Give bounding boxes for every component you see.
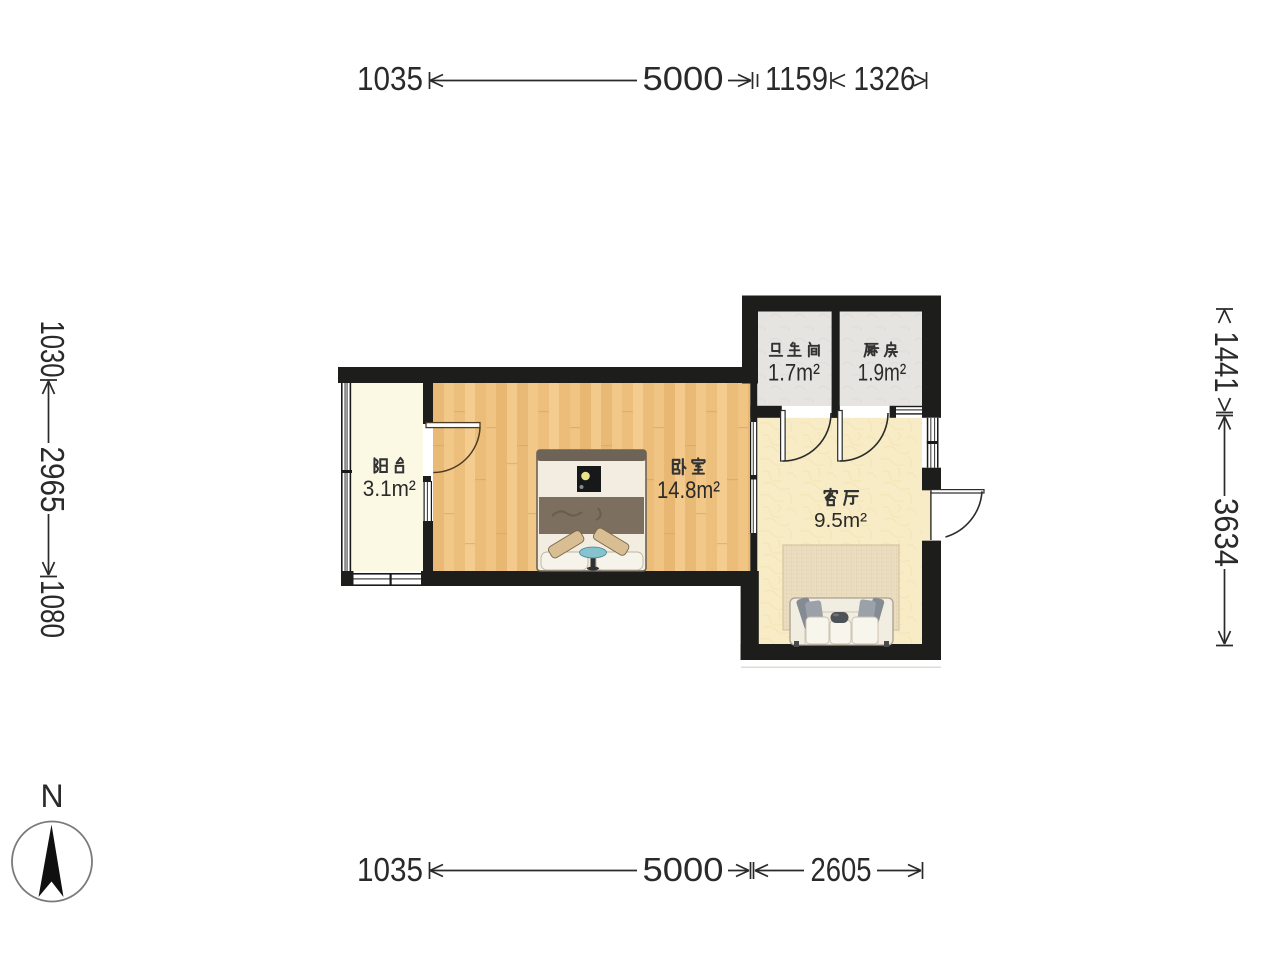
svg-text:3.1m²: 3.1m² [363, 476, 416, 501]
svg-text:2965: 2965 [34, 447, 71, 513]
svg-text:9.5m²: 9.5m² [814, 510, 867, 532]
svg-text:2605: 2605 [811, 851, 872, 888]
svg-text:1.9m²: 1.9m² [858, 360, 907, 387]
svg-text:14.8m²: 14.8m² [657, 477, 720, 504]
svg-text:3634: 3634 [1208, 498, 1245, 567]
svg-text:1035: 1035 [357, 851, 423, 888]
svg-text:1.7m²: 1.7m² [768, 360, 820, 387]
svg-text:1441: 1441 [1208, 332, 1245, 393]
svg-text:1159: 1159 [765, 60, 828, 97]
svg-text:1035: 1035 [357, 60, 423, 97]
svg-text:5000: 5000 [643, 851, 724, 888]
svg-text:1080: 1080 [34, 580, 71, 638]
svg-text:5000: 5000 [643, 60, 724, 97]
svg-text:1030: 1030 [34, 321, 71, 378]
svg-text:N: N [40, 778, 63, 814]
svg-text:1326: 1326 [854, 60, 916, 97]
